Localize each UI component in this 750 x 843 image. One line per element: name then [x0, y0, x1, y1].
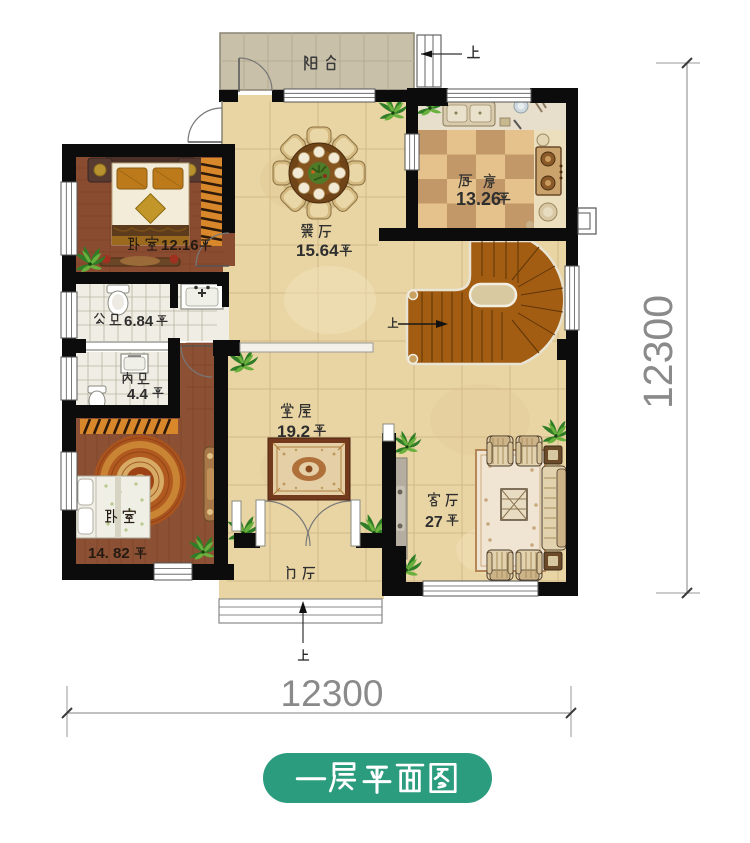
svg-text:12300: 12300 — [281, 673, 384, 714]
svg-text:4.4: 4.4 — [127, 386, 149, 403]
svg-text:14. 82: 14. 82 — [88, 545, 130, 562]
svg-text:6.84: 6.84 — [124, 313, 154, 330]
svg-text:13.26: 13.26 — [456, 189, 501, 209]
svg-text:27: 27 — [425, 514, 443, 531]
svg-text:19.2: 19.2 — [277, 422, 310, 441]
svg-text:12.16: 12.16 — [161, 237, 199, 254]
svg-text:12300: 12300 — [635, 295, 681, 409]
svg-text:15.64: 15.64 — [296, 241, 339, 260]
